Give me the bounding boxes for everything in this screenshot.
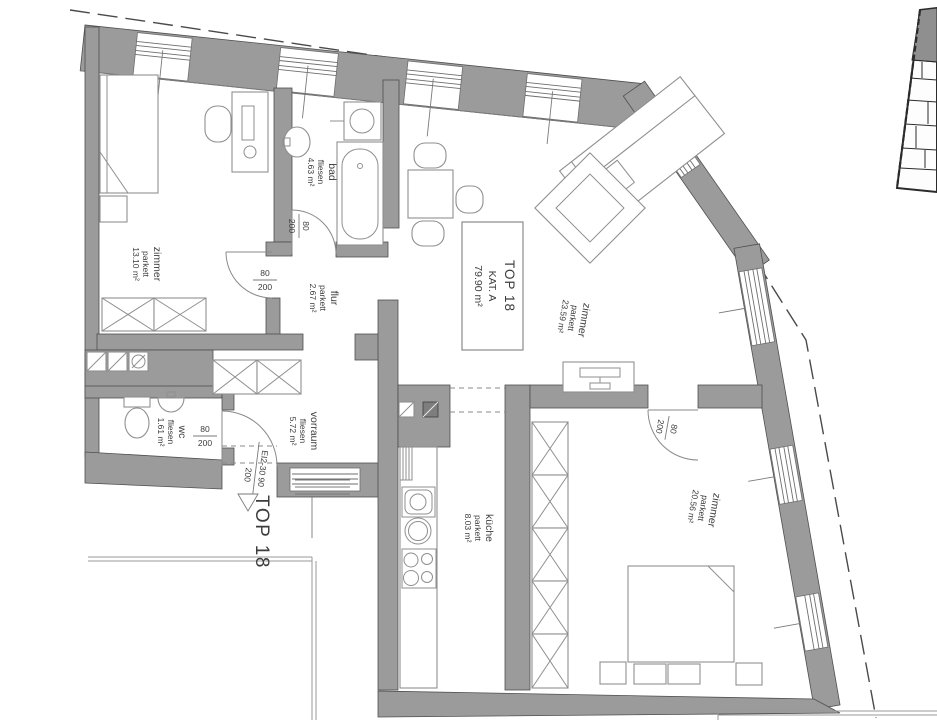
svg-text:TOP 18: TOP 18 (502, 260, 517, 312)
label-zimmer-nw: zimmer parkett 13.10 m² (131, 247, 163, 282)
room-bad: bad fliesen 4.63 m² 80 200 (283, 102, 383, 245)
label-door-entrance: EI2-30 90 200 (241, 440, 271, 495)
room-zimmer-se: zimmer parkett 20.56 m² 80 200 (532, 414, 762, 688)
open-passage-dashes (450, 388, 507, 412)
svg-text:fliesen: fliesen (298, 419, 308, 444)
room-kueche: küche parkett 8.03 m² (400, 447, 495, 688)
svg-text:bad: bad (326, 163, 338, 181)
label-door-wc: 80 200 (193, 424, 217, 448)
svg-text:200: 200 (287, 219, 297, 233)
svg-text:80: 80 (301, 221, 311, 231)
svg-text:KAT. A: KAT. A (486, 271, 498, 302)
svg-text:80: 80 (260, 268, 270, 278)
room-zimmer-e: TOP 18 KAT. A 79.90 m² zimmer parkett 23… (408, 77, 724, 392)
svg-text:1.61 m²: 1.61 m² (156, 418, 166, 447)
floor-plan-page: zimmer parkett 13.10 m² 80 200 bad flies… (0, 0, 937, 720)
svg-text:8.03 m²: 8.03 m² (463, 514, 473, 543)
svg-text:200: 200 (242, 467, 254, 483)
wardrobe-column (532, 422, 568, 688)
wardrobe (213, 360, 301, 394)
svg-text:13.10 m²: 13.10 m² (131, 247, 141, 281)
label-kueche: küche parkett 8.03 m² (463, 514, 495, 543)
svg-text:parkett: parkett (141, 251, 151, 278)
bed-double (600, 566, 762, 685)
toilet (124, 397, 150, 438)
svg-text:flur: flur (328, 291, 340, 306)
svg-text:küche: küche (483, 514, 495, 542)
svg-text:TOP 18: TOP 18 (251, 495, 272, 569)
label-zimmer-se: zimmer parkett 20.56 m² (685, 489, 723, 529)
wardrobe (102, 298, 206, 331)
label-door-zimmer-se: 80 200 (653, 414, 681, 442)
exterior-wall-bottom (378, 691, 840, 717)
unit-info-box: TOP 18 KAT. A 79.90 m² (462, 222, 523, 350)
svg-text:200: 200 (654, 419, 666, 435)
entrance-sidelight-window (290, 468, 360, 538)
desk (205, 92, 268, 172)
svg-text:vorraum: vorraum (308, 412, 320, 451)
tv-sideboard (563, 362, 634, 392)
label-vorraum: vorraum fliesen 5.72 m² (288, 412, 320, 451)
label-door-zimmer-nw: 80 200 (253, 268, 277, 292)
svg-text:200: 200 (198, 438, 212, 448)
washbasin (283, 127, 310, 157)
svg-text:zimmer: zimmer (151, 247, 163, 282)
svg-text:5.72 m²: 5.72 m² (288, 417, 298, 446)
svg-text:parkett: parkett (318, 285, 328, 312)
bathtub (337, 142, 383, 245)
svg-text:79.90 m²: 79.90 m² (472, 265, 484, 307)
key-plan-minimap (897, 8, 937, 192)
svg-text:2.67 m²: 2.67 m² (308, 284, 318, 313)
svg-text:4.63 m²: 4.63 m² (306, 158, 316, 187)
bed-single (100, 75, 158, 222)
kitchen-counter (400, 447, 437, 688)
svg-text:fliesen: fliesen (316, 160, 326, 185)
label-zimmer-e: zimmer parkett 23.59 m² (555, 299, 593, 339)
room-wc: wc fliesen 1.61 m² 80 200 (124, 392, 217, 448)
svg-text:80: 80 (668, 424, 680, 435)
svg-text:parkett: parkett (473, 515, 483, 542)
corridor-unit-label: TOP 18 (251, 495, 272, 569)
svg-text:80: 80 (200, 424, 210, 434)
label-flur: flur parkett 2.67 m² (308, 284, 340, 313)
label-bad: bad fliesen 4.63 m² (306, 158, 338, 187)
label-wc: wc fliesen 1.61 m² (156, 418, 188, 447)
washing-machine (330, 102, 381, 140)
svg-text:fliesen: fliesen (166, 420, 176, 445)
svg-text:wc: wc (176, 425, 188, 439)
svg-text:200: 200 (258, 282, 272, 292)
floor-plan-drawing: zimmer parkett 13.10 m² 80 200 bad flies… (0, 0, 937, 720)
door-zimmer-se (648, 410, 698, 460)
